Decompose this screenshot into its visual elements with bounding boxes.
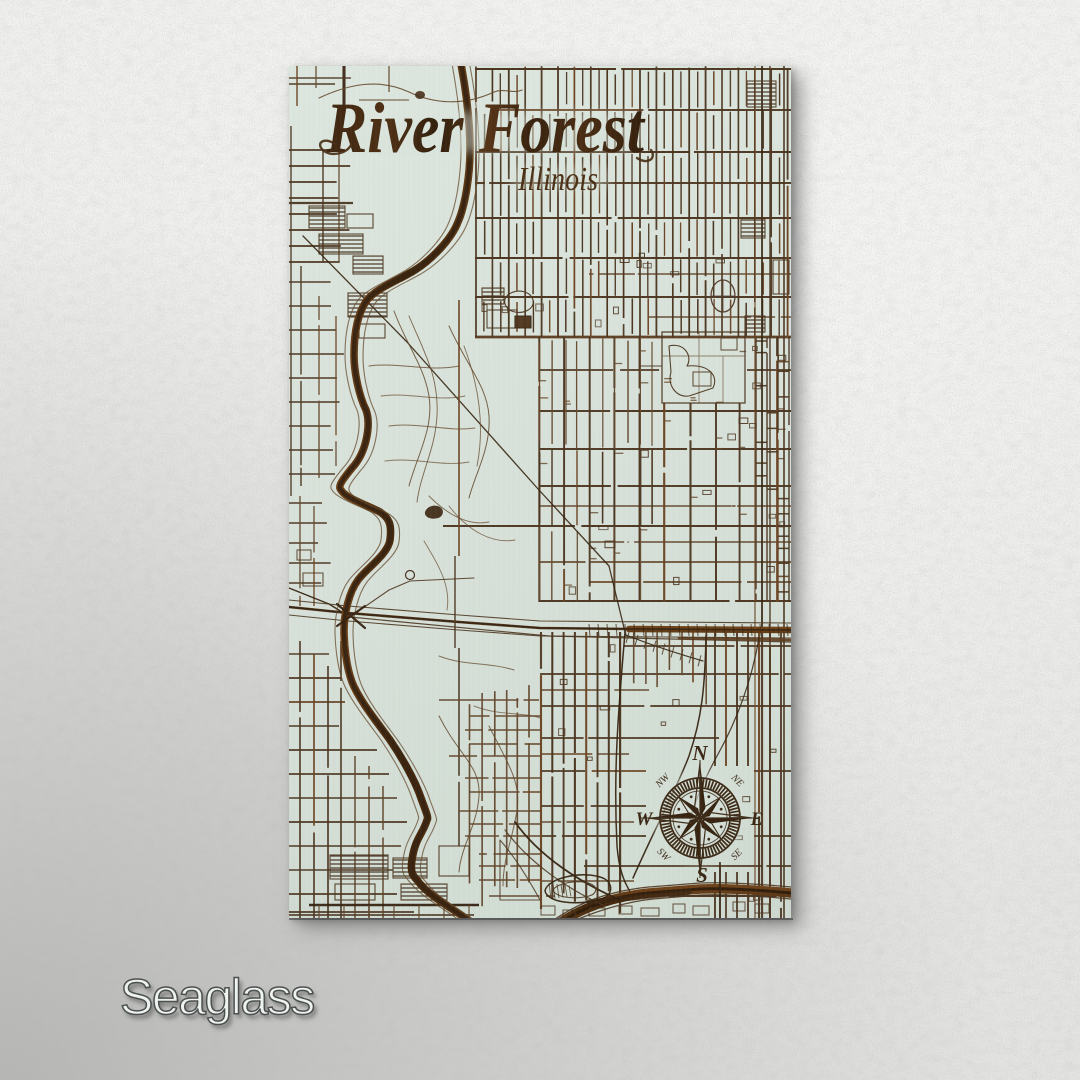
svg-text:Illinois: Illinois [517, 161, 598, 198]
svg-text:S: S [696, 863, 708, 887]
svg-text:W: W [636, 809, 654, 830]
svg-text:River Forest: River Forest [325, 88, 646, 168]
svg-text:E: E [750, 809, 764, 830]
svg-text:N: N [691, 741, 708, 765]
